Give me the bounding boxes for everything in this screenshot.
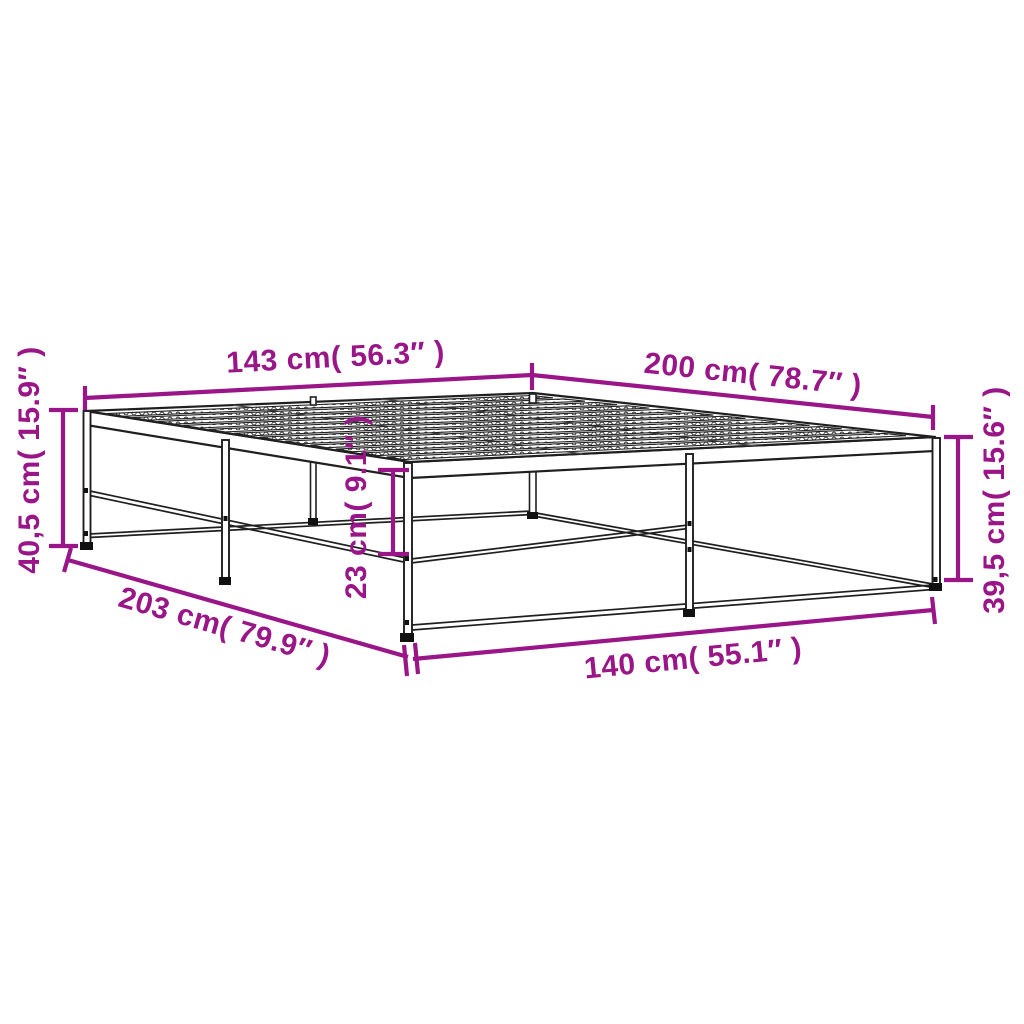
head-middle-leg-top-stub — [311, 397, 317, 405]
front-corner-leg-foot — [400, 633, 414, 642]
fitting — [934, 577, 938, 582]
back-corner-leg-foot — [527, 512, 538, 519]
dimension-height-right-label: 39,5 cm( 15.6″ ) — [978, 386, 1011, 614]
fitting — [405, 556, 409, 561]
dimension-height-left-label: 40,5 cm( 15.9″ ) — [13, 346, 46, 574]
right-middle-leg — [686, 454, 693, 612]
fitting — [688, 521, 692, 526]
far-right-lower-rail — [536, 513, 933, 588]
dimension-diagram-canvas: 143 cm( 56.3″ ) 200 cm( 78.7″ ) 40,5 cm(… — [0, 0, 1024, 1024]
fitting — [688, 547, 692, 552]
left-middle-leg-foot — [219, 577, 231, 585]
front-corner-leg — [404, 463, 412, 636]
dimension-line — [944, 437, 973, 580]
fitting — [84, 488, 88, 493]
back-corner-leg — [530, 470, 537, 513]
front-right-mid-brace — [411, 525, 688, 563]
right-middle-leg-foot — [683, 609, 695, 617]
fitting — [84, 531, 88, 536]
dimension-line — [49, 410, 78, 546]
fitting — [224, 516, 228, 521]
front-right-bottom-rail — [412, 585, 933, 630]
left-middle-leg — [222, 440, 229, 580]
right-corner-leg-foot — [929, 583, 942, 591]
dimension-height-right: 39,5 cm( 15.6″ ) — [944, 386, 1011, 614]
product-dimension-image: 143 cm( 56.3″ ) 200 cm( 78.7″ ) 40,5 cm(… — [0, 0, 1024, 1024]
left-corner-leg-foot — [80, 542, 93, 550]
dimension-height-left: 40,5 cm( 15.9″ ) — [13, 346, 78, 574]
left-corner-leg — [84, 411, 91, 545]
back-corner-leg-top-stub — [530, 394, 537, 403]
right-corner-leg — [933, 438, 941, 586]
fitting — [405, 620, 409, 625]
dimension-length-top-label: 200 cm( 78.7″ ) — [643, 347, 864, 403]
head-middle-leg-foot — [308, 518, 318, 525]
connector-fittings — [84, 488, 938, 625]
dimension-clearance-label: 23 cm( 9.1″ ) — [340, 415, 373, 599]
dimension-width-top-label: 143 cm( 56.3″ ) — [225, 335, 445, 379]
